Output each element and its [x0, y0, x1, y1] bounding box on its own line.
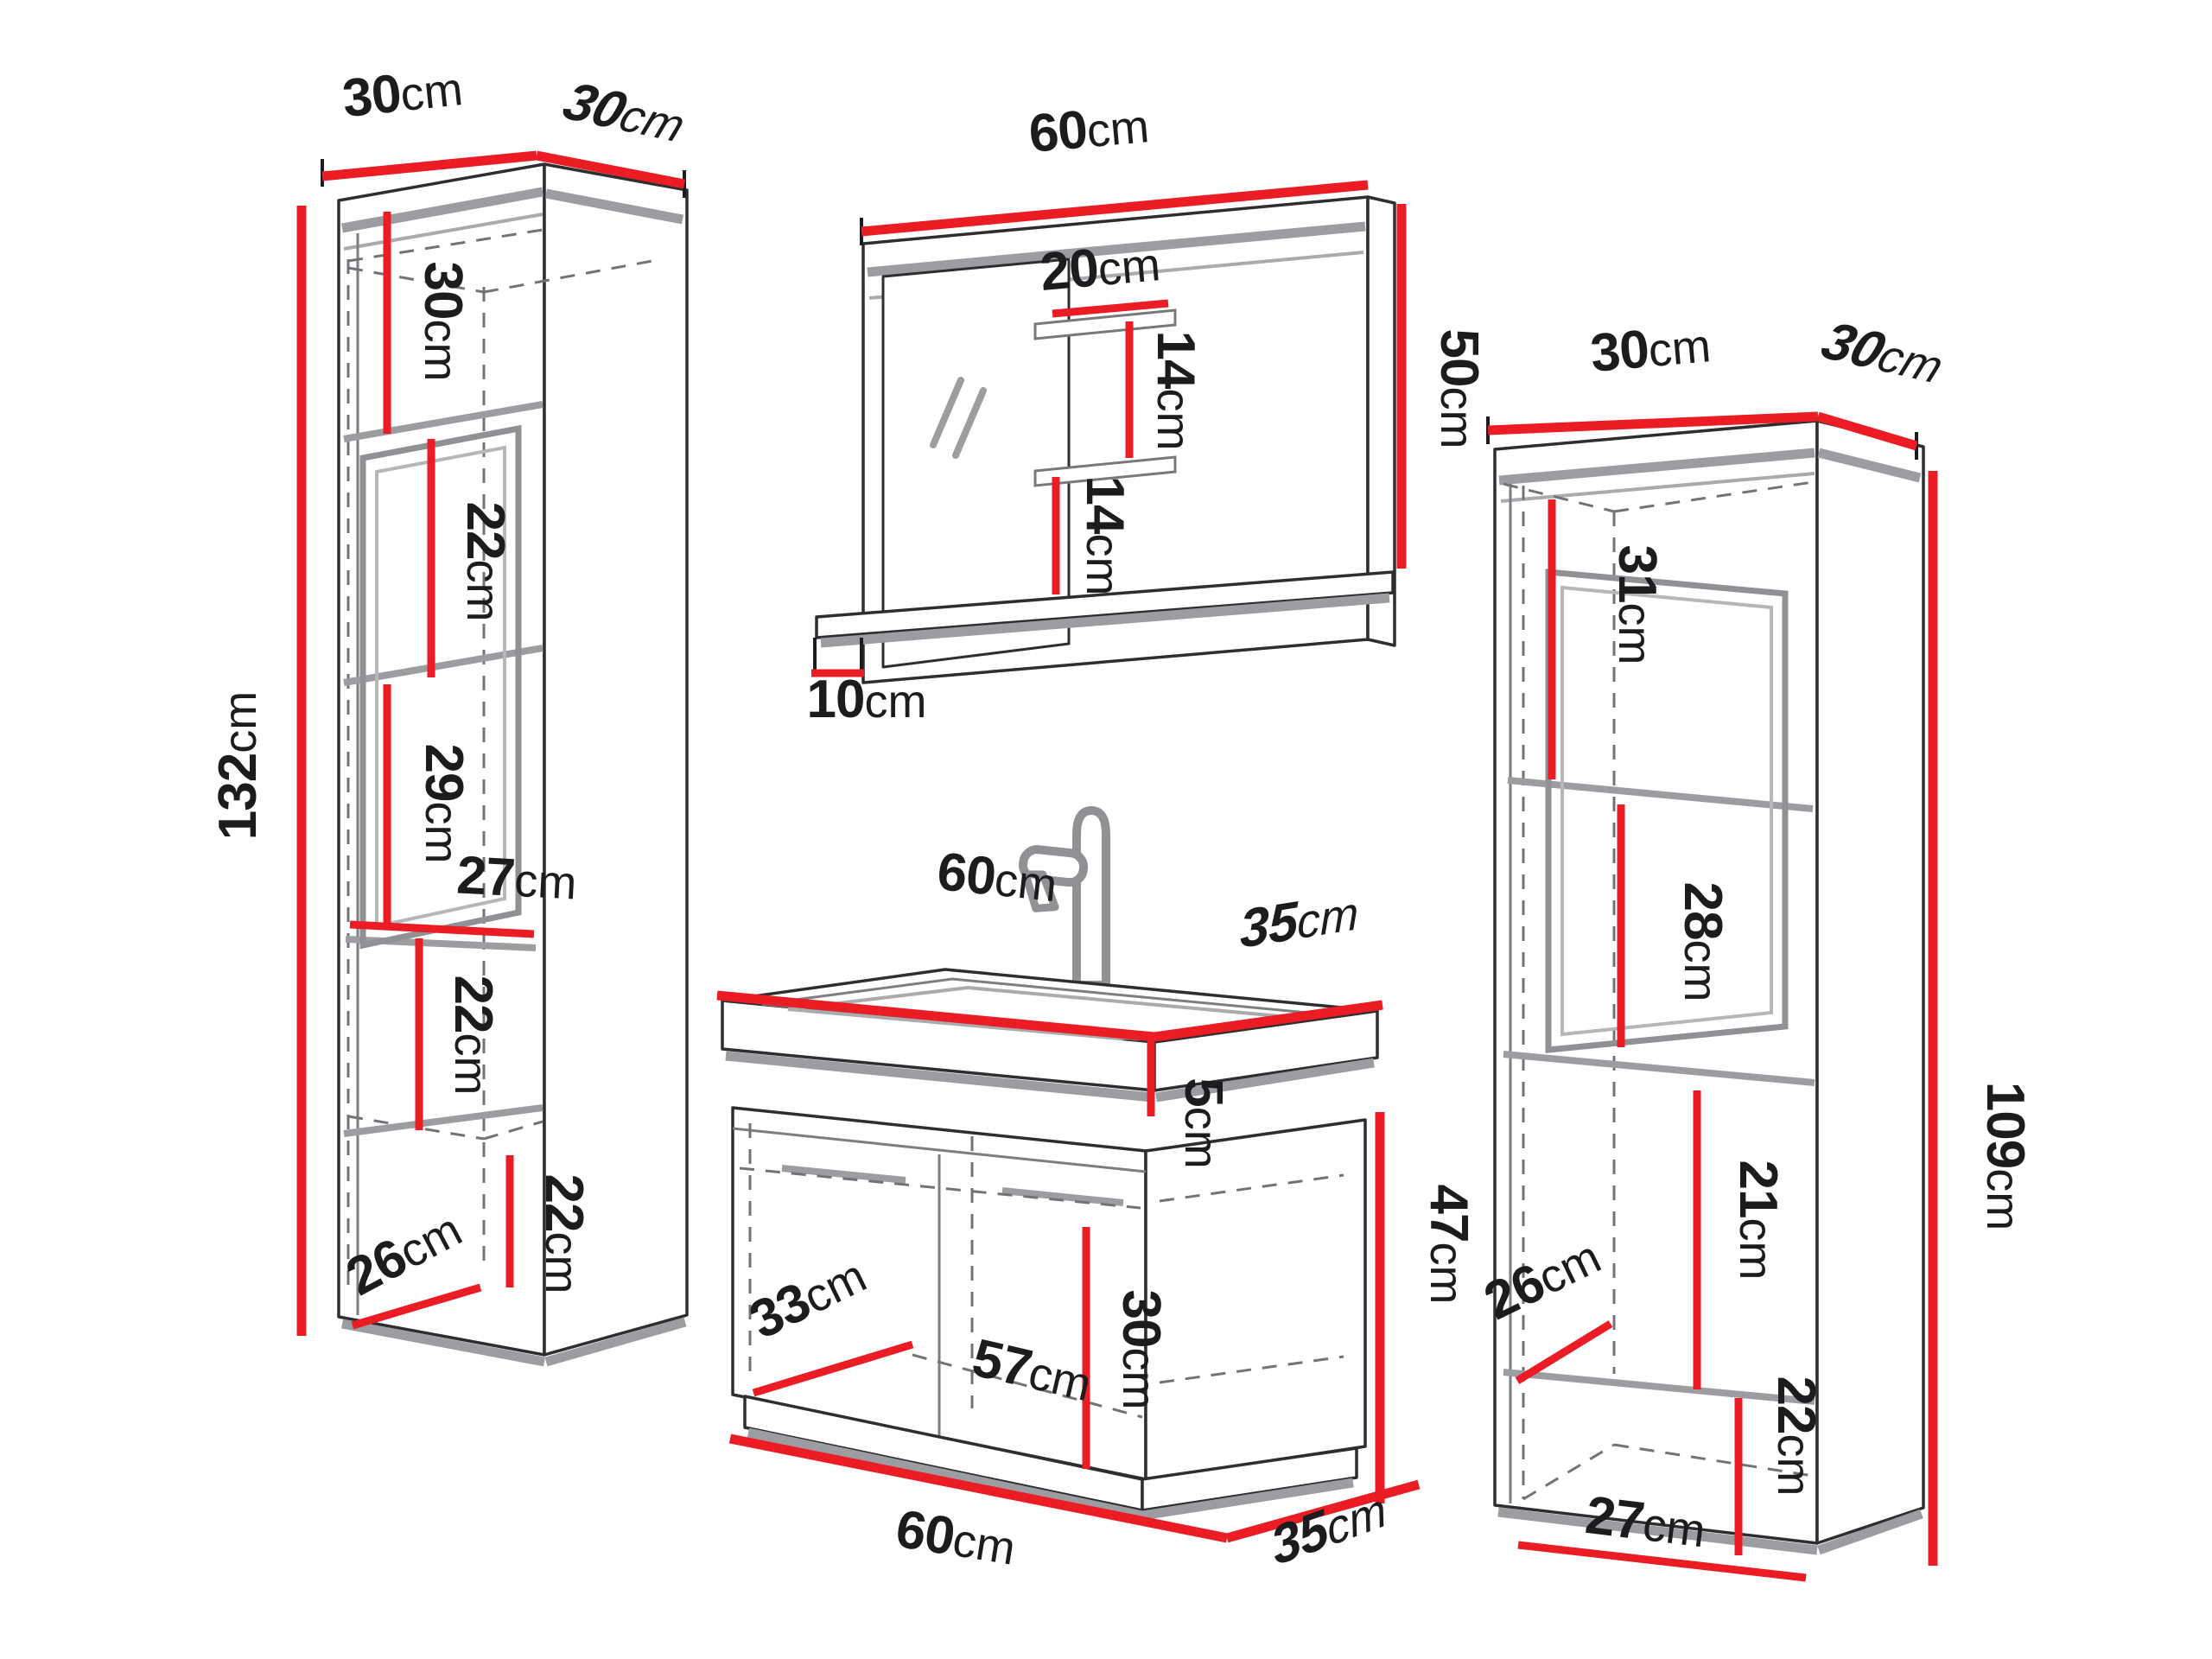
- dim-label-right-top-depth: 30cm: [1814, 312, 1952, 395]
- dim-label-door-gap: 30cm: [1111, 1290, 1171, 1410]
- right-cabinet-side: [1817, 421, 1923, 1543]
- dim-label-right-top-width: 30cm: [1588, 314, 1713, 384]
- dim-label-left-gap4: 22cm: [443, 976, 503, 1096]
- mirror-unit: 60cm 20cm 14cm 14cm 50cm 10cm: [807, 94, 1489, 729]
- dim-label-vanity-top-depth: 35cm: [1239, 881, 1358, 960]
- left-cabinet: 30cm 30cm 132cm 30cm 22cm 29cm 27cm 22cm…: [208, 57, 694, 1362]
- page: 30cm 30cm 132cm 30cm 22cm 29cm 27cm 22cm…: [0, 0, 2212, 1659]
- dim-label-mirror-width: 60cm: [1027, 94, 1151, 164]
- dim-label-mirror-gap-bottom: 14cm: [1075, 476, 1135, 596]
- dim-label-mirror-gap-top: 14cm: [1146, 331, 1205, 451]
- washbasin-cabinet: 60cm 35cm 5cm 47cm 30cm 33cm 57cm 60cm 3…: [717, 810, 1478, 1578]
- dim-label-vanity-bottom-width: 60cm: [892, 1499, 1020, 1577]
- dim-label-vanity-height: 47cm: [1419, 1185, 1478, 1305]
- dim-label-right-gap1: 31cm: [1607, 545, 1667, 665]
- dim-label-basin-height: 5cm: [1173, 1077, 1233, 1168]
- vanity-side: [1146, 1120, 1365, 1479]
- right-cabinet: 30cm 30cm 109cm 31cm 28cm 26cm 21cm 22cm…: [1475, 312, 2035, 1578]
- faucet-pipe: [1077, 810, 1106, 985]
- dim-label-mirror-shelf-depth: 10cm: [807, 670, 927, 729]
- dim-label-left-height: 132cm: [208, 691, 268, 840]
- dim-label-left-gap1: 30cm: [413, 262, 473, 382]
- dim-label-right-gap3: 21cm: [1728, 1160, 1788, 1281]
- dim-label-right-gap4: 22cm: [1766, 1376, 1826, 1497]
- dim-label-left-top-depth: 30cm: [556, 73, 694, 154]
- dim-label-right-height: 109cm: [1975, 1082, 2035, 1230]
- dim-label-left-top-width: 30cm: [340, 57, 465, 129]
- dim-label-left-gap2: 22cm: [455, 502, 515, 622]
- dim-label-mirror-height: 50cm: [1429, 329, 1489, 449]
- dim-label-left-gap5: 22cm: [534, 1174, 594, 1294]
- dimension-diagram: 30cm 30cm 132cm 30cm 22cm 29cm 27cm 22cm…: [0, 0, 2212, 1659]
- dim-label-right-gap2: 28cm: [1673, 882, 1732, 1002]
